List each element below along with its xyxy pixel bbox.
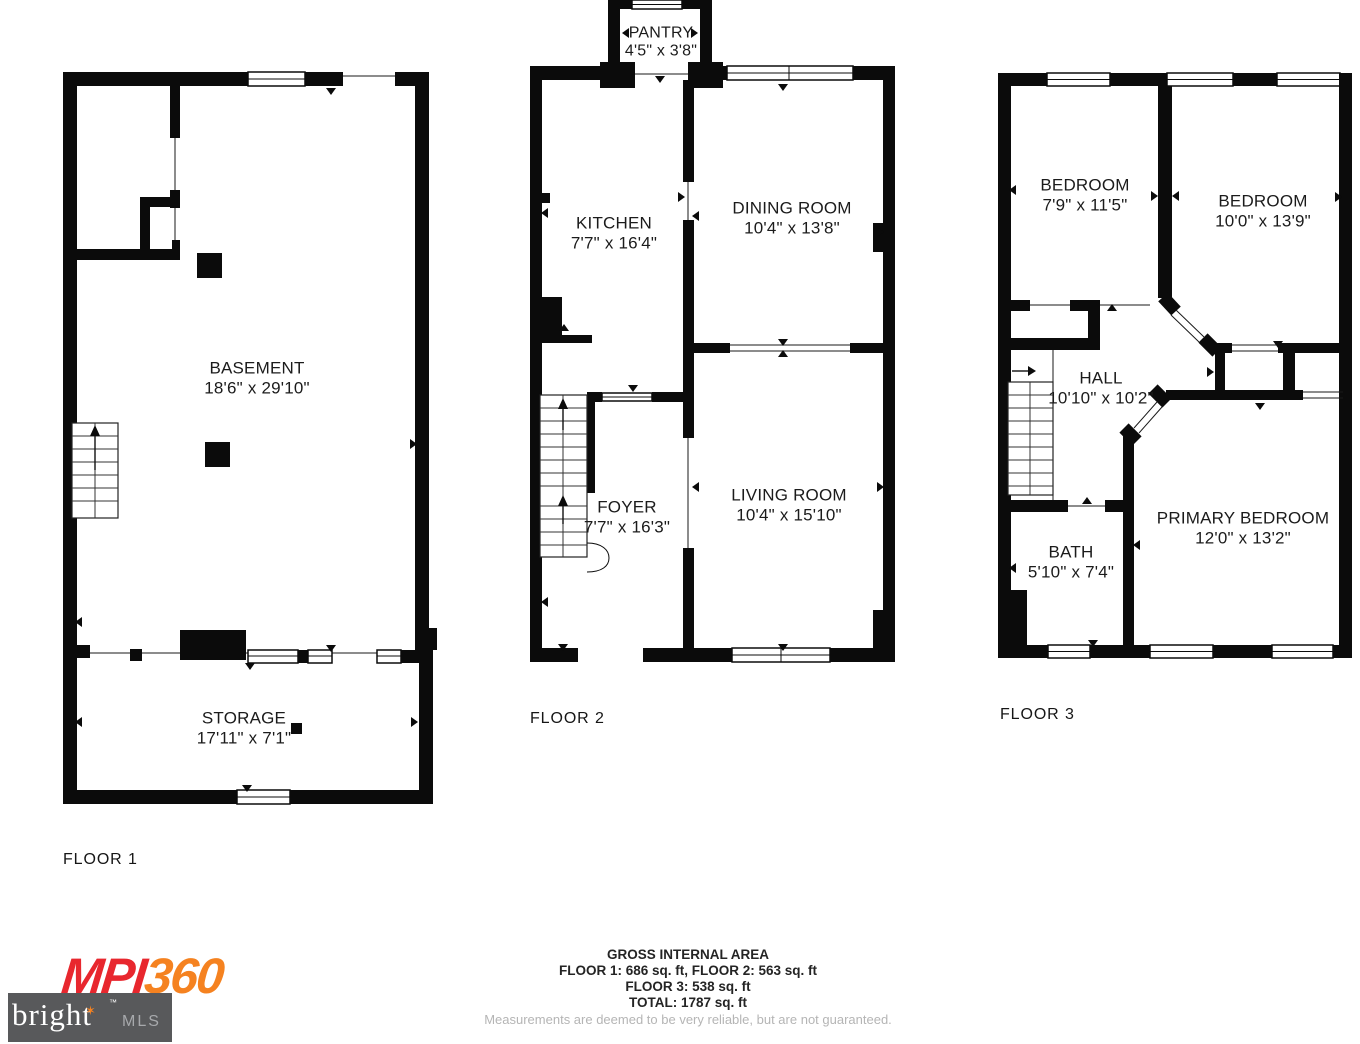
room-dims: 4'5" x 3'8" bbox=[625, 42, 697, 60]
room-dims: 7'7" x 16'4" bbox=[571, 233, 657, 253]
room-label-primary-bedroom: PRIMARY BEDROOM 12'0" x 13'2" bbox=[1157, 509, 1329, 548]
floor2-label: FLOOR 2 bbox=[530, 710, 605, 728]
floor3-label: FLOOR 3 bbox=[1000, 706, 1075, 724]
window bbox=[1047, 73, 1110, 86]
area-line-1: FLOOR 1: 686 sq. ft, FLOOR 2: 563 sq. ft bbox=[484, 963, 892, 979]
chimney bbox=[180, 630, 246, 660]
room-label-dining-room: DINING ROOM 10'4" x 13'8" bbox=[732, 199, 851, 238]
floor1-label: FLOOR 1 bbox=[63, 851, 138, 869]
area-title: GROSS INTERNAL AREA bbox=[484, 947, 892, 963]
chimney bbox=[538, 297, 562, 335]
room-label-bath: BATH 5'10" x 7'4" bbox=[1028, 543, 1114, 582]
window bbox=[308, 650, 332, 663]
room-dims: 7'7" x 16'3" bbox=[584, 517, 670, 537]
trademark-symbol: ™ bbox=[109, 998, 117, 1007]
sparkle-icon: ✶ bbox=[85, 1003, 96, 1019]
room-label-living-room: LIVING ROOM 10'4" x 15'10" bbox=[731, 486, 847, 525]
room-dims: 17'11" x 7'1" bbox=[197, 728, 292, 748]
room-name: BEDROOM bbox=[1215, 192, 1311, 212]
room-label-bedroom-2: BEDROOM 10'0" x 13'9" bbox=[1215, 192, 1311, 231]
gross-internal-area-summary: GROSS INTERNAL AREA FLOOR 1: 686 sq. ft,… bbox=[484, 947, 892, 1028]
sliding-door bbox=[602, 393, 652, 401]
window bbox=[1167, 73, 1233, 86]
room-name: FOYER bbox=[584, 498, 670, 518]
stairs-icon bbox=[1008, 350, 1053, 503]
area-line-3: TOTAL: 1787 sq. ft bbox=[484, 995, 892, 1011]
room-name: BATH bbox=[1028, 543, 1114, 563]
room-dims: 5'10" x 7'4" bbox=[1028, 562, 1114, 582]
room-dims: 10'0" x 13'9" bbox=[1215, 211, 1311, 231]
stairs-icon bbox=[540, 395, 609, 572]
bright-mls-logo: bright ✶ ™ MLS bbox=[8, 993, 172, 1042]
room-label-bedroom-1: BEDROOM 7'9" x 11'5" bbox=[1040, 176, 1129, 215]
bright-wordmark: bright bbox=[12, 997, 92, 1033]
window bbox=[632, 0, 682, 9]
room-name: BASEMENT bbox=[204, 359, 310, 379]
room-name: LIVING ROOM bbox=[731, 486, 847, 506]
column-post bbox=[205, 442, 230, 467]
room-label-pantry: PANTRY 4'5" x 3'8" bbox=[625, 25, 697, 60]
measurement-disclaimer: Measurements are deemed to be very relia… bbox=[484, 1012, 892, 1028]
window bbox=[1272, 645, 1333, 658]
window bbox=[727, 66, 853, 80]
stairs-icon bbox=[72, 423, 118, 518]
room-label-kitchen: KITCHEN 7'7" x 16'4" bbox=[571, 214, 657, 253]
floor2-plan bbox=[530, 0, 895, 662]
room-dims: 10'10" x 10'2" bbox=[1048, 388, 1154, 408]
column-post bbox=[197, 253, 222, 278]
room-name: HALL bbox=[1048, 369, 1154, 389]
room-name: STORAGE bbox=[197, 709, 292, 729]
room-name: BEDROOM bbox=[1040, 176, 1129, 196]
window bbox=[1048, 645, 1090, 658]
room-label-foyer: FOYER 7'7" x 16'3" bbox=[584, 498, 670, 537]
room-dims: 10'4" x 13'8" bbox=[732, 218, 851, 238]
mls-wordmark: MLS bbox=[122, 1013, 161, 1031]
room-name: KITCHEN bbox=[571, 214, 657, 234]
room-dims: 10'4" x 15'10" bbox=[731, 505, 847, 525]
room-dims: 12'0" x 13'2" bbox=[1157, 528, 1329, 548]
room-name: PRIMARY BEDROOM bbox=[1157, 509, 1329, 529]
window bbox=[237, 790, 290, 804]
room-label-basement: BASEMENT 18'6" x 29'10" bbox=[204, 359, 310, 398]
area-line-2: FLOOR 3: 538 sq. ft bbox=[484, 979, 892, 995]
room-label-storage: STORAGE 17'11" x 7'1" bbox=[197, 709, 292, 748]
floor1-plan bbox=[63, 72, 437, 804]
room-dims: 7'9" x 11'5" bbox=[1040, 195, 1129, 215]
room-name: PANTRY bbox=[625, 25, 697, 43]
room-name: DINING ROOM bbox=[732, 199, 851, 219]
window bbox=[1150, 645, 1213, 658]
window bbox=[377, 650, 401, 663]
window bbox=[1277, 73, 1340, 86]
window bbox=[248, 72, 305, 86]
room-dims: 18'6" x 29'10" bbox=[204, 378, 310, 398]
room-label-hall: HALL 10'10" x 10'2" bbox=[1048, 369, 1154, 408]
floorplan-page: BASEMENT 18'6" x 29'10" STORAGE 17'11" x… bbox=[0, 0, 1360, 1044]
window bbox=[248, 650, 298, 663]
window bbox=[732, 648, 830, 662]
